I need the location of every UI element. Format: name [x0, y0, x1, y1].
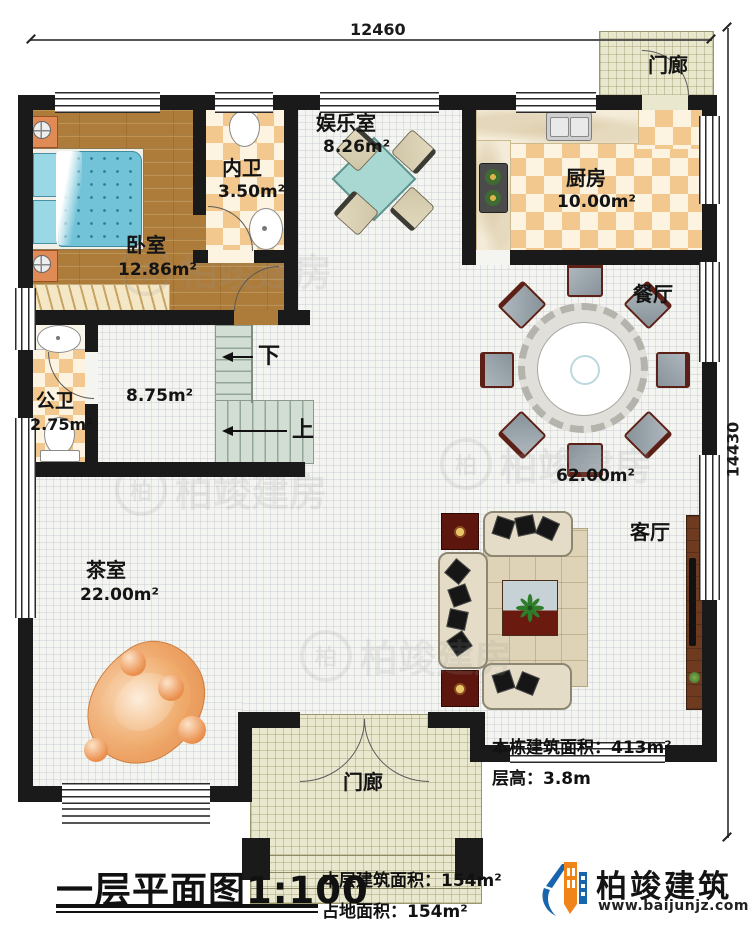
- dimension-line-top: [30, 39, 712, 41]
- sink-drain-icon: [56, 336, 60, 340]
- wall-kitchen-bottom: [510, 250, 717, 265]
- dimension-width: 12460: [350, 20, 406, 39]
- bed-sheet-fold: [56, 151, 82, 245]
- dining-chair: [480, 352, 514, 388]
- watermark-text: 柏竣建房: [360, 628, 512, 683]
- label-porch-bottom: 门廊: [343, 772, 383, 792]
- kitchen-entry-gap: [476, 250, 510, 265]
- dining-chair: [656, 352, 690, 388]
- porch-step-line: [250, 855, 480, 856]
- window-right-3: [699, 455, 720, 600]
- stairs-up-arrowline: [231, 430, 287, 432]
- wall-bedroom-block-right: [284, 95, 298, 325]
- window-left-2: [15, 418, 36, 618]
- window-right-dining: [699, 262, 720, 362]
- innerbath-door-gap: [208, 250, 254, 263]
- kitchen-sink: [546, 112, 592, 141]
- tea-stool: [158, 675, 184, 701]
- floor-height-value: 3.8m: [543, 769, 591, 789]
- floor-plan-canvas: 下 上: [0, 0, 750, 927]
- label-living: 客厅: [630, 522, 670, 542]
- stairs-rail: [251, 325, 253, 403]
- tea-stool: [84, 738, 108, 762]
- window-left-1: [15, 288, 36, 350]
- tea-stool: [178, 716, 206, 744]
- label-porch-top: 门廊: [648, 55, 688, 75]
- public-toilet-tank: [40, 450, 80, 462]
- tea-step-line: [62, 808, 210, 810]
- dining-chair: [567, 263, 603, 297]
- plant-icon: [515, 593, 545, 623]
- bed-pillow: [33, 200, 57, 244]
- tea-step-line: [62, 815, 210, 817]
- label-tea: 茶室: [86, 560, 126, 580]
- window-right-kitchen: [699, 116, 720, 204]
- floor-height-label: 层高：: [492, 769, 543, 789]
- plan-title-underline-2: [56, 911, 318, 913]
- stairs-upper-flight: [215, 325, 253, 405]
- area-kitchen: 10.00m²: [557, 194, 636, 211]
- stairs-down-arrowline: [231, 356, 253, 358]
- label-dining: 餐厅: [633, 284, 673, 304]
- tv-screen: [689, 558, 696, 646]
- window-tea-bottom: [62, 783, 210, 804]
- area-bedroom: 12.86m²: [118, 262, 197, 279]
- land-area: 占地面积：154m²: [322, 897, 468, 922]
- land-area-label: 占地面积：: [322, 902, 407, 922]
- area-hall: 8.75m²: [126, 388, 193, 405]
- window-top-3: [320, 92, 439, 113]
- stairs-up-label: 上: [292, 420, 314, 442]
- watermark-logo-icon: 柏: [300, 630, 352, 682]
- floor-area: 本层建筑面积：154m²: [322, 866, 502, 891]
- sink-drain-icon: [262, 226, 267, 231]
- total-building-area-value: 413m²: [611, 738, 672, 758]
- wall-tea-porch-connector: [238, 712, 252, 802]
- brand-logo-icon: [538, 858, 590, 918]
- stairs-down-label: 下: [258, 346, 280, 368]
- label-bedroom: 卧室: [126, 235, 166, 255]
- area-inner-bath: 3.50m²: [218, 184, 285, 201]
- watermark-logo-icon: 柏: [440, 438, 492, 490]
- sofa-pillow: [514, 514, 537, 537]
- brand-website: www.baijunjz.com: [598, 898, 749, 914]
- window-top-1: [55, 92, 160, 113]
- tea-stool: [120, 650, 146, 676]
- area-public-bath: 2.75m²: [30, 417, 93, 433]
- wall-entertainment-kitchen-divider: [462, 95, 476, 265]
- label-entertainment: 娱乐室: [316, 113, 376, 133]
- area-entertainment: 8.26m²: [323, 139, 390, 156]
- wall-porch-living-connector: [470, 712, 485, 762]
- bed-pillow: [33, 153, 57, 197]
- label-kitchen: 厨房: [566, 168, 606, 188]
- label-inner-bath: 内卫: [222, 158, 262, 178]
- porch-kitchen-door-gap: [642, 95, 688, 110]
- window-top-2: [215, 92, 273, 113]
- total-building-area-label: 本栋建筑面积：: [492, 738, 611, 758]
- land-area-value: 154m²: [407, 902, 468, 922]
- dimension-height: 14430: [724, 420, 743, 480]
- kitchen-stove: [479, 163, 508, 213]
- watermark: 柏 柏竣建房: [300, 628, 512, 683]
- floor-area-value: 154m²: [441, 871, 502, 891]
- wall-bedroom-innerbath-divider: [193, 95, 206, 215]
- floor-height: 层高：3.8m: [492, 764, 591, 789]
- tea-step-line: [62, 822, 210, 824]
- dining-table-center: [570, 355, 600, 385]
- wall-hall-bottom: [18, 462, 305, 477]
- tv-plant-icon: [689, 672, 700, 683]
- area-tea: 22.00m²: [80, 587, 159, 604]
- area-great-room: 62.00m²: [556, 468, 635, 485]
- plan-title-underline: [56, 904, 318, 908]
- sofa-side-table: [441, 513, 479, 550]
- bedroom-door-gap: [234, 310, 278, 325]
- kitchen-tile-corner: [637, 109, 702, 149]
- total-building-area: 本栋建筑面积：413m²: [492, 733, 672, 758]
- floor-area-label: 本层建筑面积：: [322, 871, 441, 891]
- nightstand-lamp-icon: [33, 255, 51, 273]
- nightstand-lamp-icon: [33, 121, 51, 139]
- window-top-4: [516, 92, 596, 113]
- label-public-bath: 公卫: [36, 392, 74, 411]
